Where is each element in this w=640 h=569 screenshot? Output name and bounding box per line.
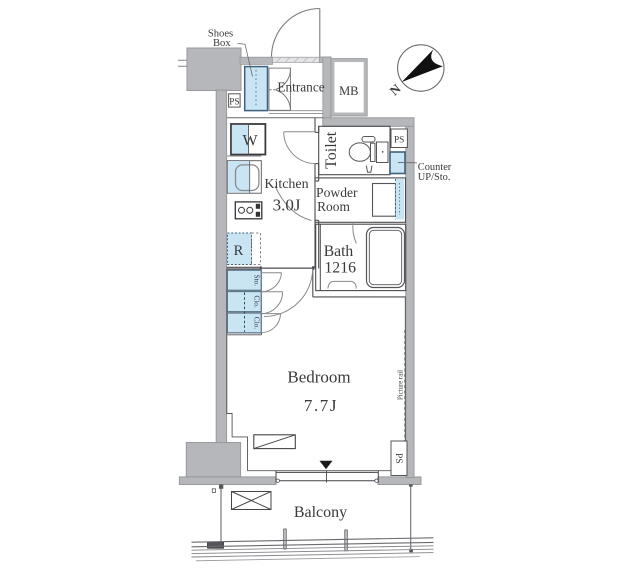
- svg-text:W: W: [242, 133, 258, 150]
- svg-text:1216: 1216: [324, 259, 356, 276]
- svg-text:3.0J: 3.0J: [273, 196, 301, 215]
- svg-text:Toilet: Toilet: [323, 131, 340, 169]
- svg-text:Balcony: Balcony: [294, 504, 347, 521]
- svg-text:Bath: Bath: [324, 243, 354, 260]
- svg-text:Room: Room: [317, 199, 350, 214]
- svg-text:Clo.: Clo.: [253, 296, 261, 308]
- svg-text:PS: PS: [393, 453, 403, 464]
- svg-text:R: R: [234, 243, 244, 259]
- svg-text:Bedroom: Bedroom: [287, 368, 350, 387]
- svg-text:MB: MB: [339, 84, 358, 98]
- svg-text:Picture rail: Picture rail: [398, 370, 405, 400]
- svg-text:Kitchen: Kitchen: [264, 177, 308, 192]
- svg-text:Powder: Powder: [316, 185, 358, 200]
- svg-text:Entrance: Entrance: [277, 79, 324, 94]
- svg-text:7.7J: 7.7J: [304, 396, 338, 415]
- svg-text:Sto.: Sto.: [253, 275, 261, 287]
- svg-text:PS: PS: [394, 135, 404, 145]
- svg-text:PS: PS: [229, 98, 239, 108]
- svg-text:UP/Sto.: UP/Sto.: [418, 172, 451, 183]
- svg-text:Box: Box: [213, 38, 231, 49]
- svg-text:Clo.: Clo.: [253, 317, 261, 329]
